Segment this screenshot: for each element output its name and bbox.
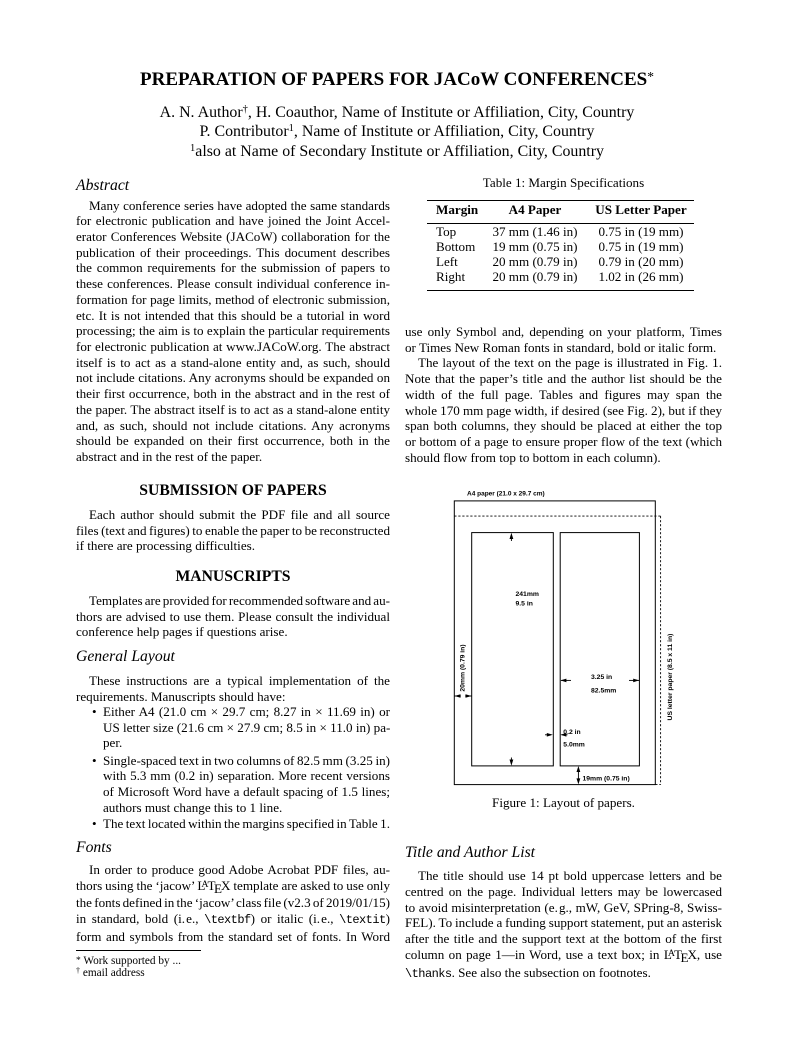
svg-text:3.25 in: 3.25 in (591, 674, 612, 681)
svg-text:241mm: 241mm (516, 591, 539, 598)
svg-text:9.5 in: 9.5 in (516, 600, 533, 607)
svg-text:0.2 in: 0.2 in (563, 729, 580, 736)
svg-text:5.0mm: 5.0mm (563, 741, 585, 748)
svg-text:82.5mm: 82.5mm (591, 688, 616, 695)
svg-text:19mm (0.75 in): 19mm (0.75 in) (583, 776, 630, 783)
svg-text:US letter paper (8.5 x 11 in): US letter paper (8.5 x 11 in) (667, 634, 674, 721)
svg-text:A4 paper (21.0 x 29.7 cm): A4 paper (21.0 x 29.7 cm) (467, 491, 545, 498)
svg-text:20mm (0.79 in): 20mm (0.79 in) (460, 644, 467, 691)
